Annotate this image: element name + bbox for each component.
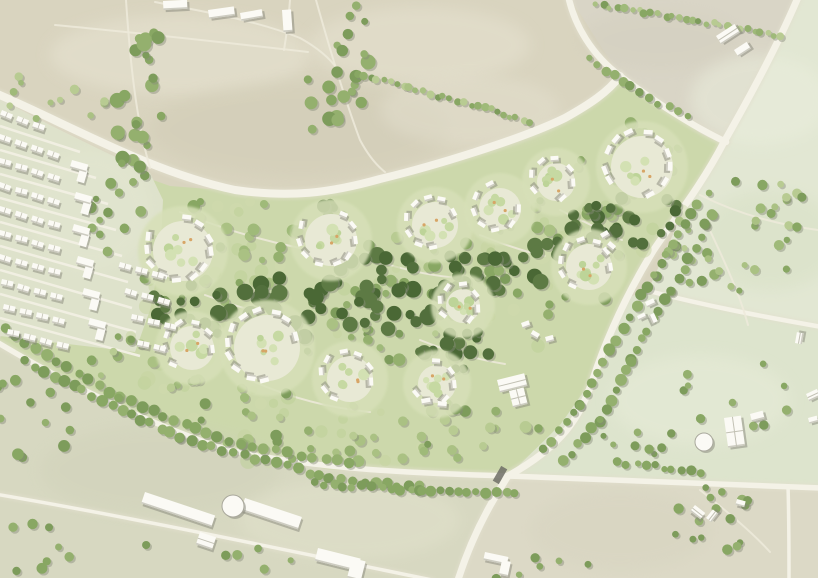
tree — [348, 334, 355, 341]
tree — [388, 78, 394, 84]
tree — [110, 348, 118, 356]
tree — [698, 234, 705, 241]
tree — [491, 407, 500, 416]
tree — [118, 405, 129, 416]
tree — [187, 435, 198, 446]
tree — [752, 217, 760, 225]
tree — [727, 283, 734, 290]
tree — [240, 450, 249, 459]
tree — [662, 251, 669, 258]
tree — [771, 203, 778, 210]
courtyard-green — [175, 342, 185, 352]
tree — [221, 551, 230, 560]
tree — [618, 323, 629, 334]
courtyard-dot — [648, 175, 651, 178]
tree — [395, 485, 405, 495]
farm-tank — [695, 433, 713, 451]
tree — [109, 401, 118, 410]
tree — [472, 488, 479, 495]
tree — [686, 465, 696, 475]
cluster-4 — [290, 199, 372, 281]
tree — [685, 113, 691, 119]
tree — [682, 253, 693, 264]
tree — [440, 337, 454, 351]
tree — [558, 455, 569, 466]
tree — [327, 318, 339, 330]
tree — [18, 80, 24, 86]
tree — [667, 429, 675, 437]
tree — [629, 214, 640, 225]
grass-blob — [140, 371, 155, 386]
tree — [237, 284, 253, 300]
tree — [6, 102, 13, 109]
tree — [666, 102, 674, 110]
tree — [58, 440, 70, 452]
tree — [377, 275, 387, 285]
tree — [725, 514, 735, 524]
tree — [260, 200, 268, 208]
building-edge — [474, 305, 476, 313]
cluster-3 — [219, 300, 315, 396]
tree — [190, 296, 200, 306]
tree — [250, 454, 260, 464]
tree — [326, 95, 337, 106]
tree — [98, 372, 104, 378]
courtyard-green — [423, 377, 429, 383]
tree — [372, 449, 380, 457]
courtyard-dot — [582, 268, 585, 271]
tree — [134, 160, 146, 172]
tree — [670, 205, 681, 216]
tree — [654, 10, 660, 16]
building-body — [282, 9, 293, 32]
tree — [447, 445, 457, 455]
tree — [136, 131, 149, 144]
tree — [363, 335, 373, 345]
tree — [15, 72, 24, 81]
tree — [354, 297, 364, 307]
tree — [771, 33, 777, 39]
tree — [792, 222, 801, 231]
tree — [716, 22, 721, 27]
tree — [271, 457, 282, 468]
tree — [593, 369, 601, 377]
tree — [703, 22, 709, 28]
tree — [545, 300, 553, 308]
tree — [774, 240, 784, 250]
tree — [397, 453, 407, 463]
tree — [657, 443, 666, 452]
tree — [419, 447, 428, 456]
tree — [642, 328, 650, 336]
courtyard-green — [165, 249, 176, 260]
tree — [453, 454, 461, 462]
tree — [41, 349, 53, 361]
tree — [586, 422, 597, 433]
tree — [248, 442, 257, 451]
tree — [635, 88, 644, 97]
tree — [480, 488, 491, 499]
tree — [657, 229, 665, 237]
grass-blob — [377, 408, 385, 416]
tree — [777, 181, 784, 188]
tree — [636, 238, 648, 250]
tree — [593, 1, 598, 6]
tree — [357, 480, 367, 490]
tree — [93, 196, 99, 202]
tree — [705, 255, 712, 262]
tree — [596, 416, 603, 423]
courtyard-dot — [642, 169, 645, 172]
tree — [697, 276, 707, 286]
tree — [718, 488, 726, 496]
tree — [640, 9, 648, 17]
tree — [337, 45, 348, 56]
tree — [445, 487, 454, 496]
road-field-spur — [788, 486, 789, 578]
tree — [167, 384, 175, 392]
tree — [668, 240, 678, 250]
tree — [674, 107, 682, 115]
tree — [258, 443, 269, 454]
tree — [699, 219, 709, 229]
tree — [695, 18, 701, 24]
grass-blob — [315, 425, 327, 437]
tree — [681, 265, 690, 274]
tree — [483, 348, 494, 359]
tree — [689, 536, 696, 543]
tree — [729, 399, 736, 406]
tree — [610, 70, 620, 80]
courtyard-green — [579, 261, 586, 268]
tree — [603, 343, 615, 355]
tree — [533, 274, 549, 290]
tree — [563, 418, 571, 426]
tree — [462, 488, 471, 497]
tree — [152, 31, 165, 44]
building-edge — [666, 162, 668, 171]
tree — [200, 398, 211, 409]
tree — [620, 4, 628, 12]
cluster-6 — [397, 187, 473, 263]
courtyard-dot — [442, 377, 445, 380]
tree — [469, 103, 475, 109]
tree — [782, 405, 791, 414]
tree — [541, 238, 553, 250]
tree — [750, 265, 759, 274]
tree — [360, 50, 368, 58]
tree — [621, 365, 631, 375]
tree — [573, 439, 582, 448]
tree — [667, 466, 674, 473]
grass-blob — [269, 399, 278, 408]
tree — [197, 198, 204, 205]
tree — [126, 395, 137, 406]
tree — [379, 251, 393, 265]
courtyard-green — [448, 297, 458, 307]
tree — [175, 433, 184, 442]
tree — [348, 88, 356, 96]
courtyard-green — [543, 181, 550, 188]
tree — [120, 224, 130, 234]
tree — [352, 1, 361, 10]
tree — [659, 293, 671, 305]
tree — [127, 336, 134, 343]
courtyard-green — [345, 368, 353, 376]
tree — [260, 565, 269, 574]
courtyard-dot — [588, 274, 591, 277]
tree — [66, 426, 75, 435]
tree — [733, 542, 742, 551]
tree — [681, 219, 691, 229]
tree — [384, 355, 394, 365]
tree — [338, 483, 347, 492]
tree — [307, 453, 317, 463]
tree — [325, 473, 334, 482]
tree — [454, 487, 463, 496]
tree — [420, 87, 426, 93]
tree — [344, 458, 354, 468]
tree — [26, 398, 35, 407]
tree — [474, 102, 482, 110]
tree — [200, 427, 211, 438]
courtyard-dot — [422, 223, 425, 226]
tree — [370, 434, 377, 441]
tree — [651, 461, 658, 468]
tree — [331, 66, 343, 78]
courtyard-green — [627, 172, 634, 179]
tree — [613, 457, 622, 466]
tree — [477, 253, 489, 265]
tree — [481, 103, 489, 111]
tree — [626, 313, 634, 321]
tree — [722, 544, 732, 554]
tree — [610, 441, 616, 447]
tree — [782, 193, 791, 202]
tree — [644, 444, 653, 453]
tree — [359, 72, 367, 80]
courtyard-green — [177, 258, 185, 266]
tree — [784, 237, 790, 243]
tree — [634, 429, 642, 437]
tree — [87, 355, 97, 365]
tree — [398, 416, 408, 426]
courtyard-dot — [185, 349, 188, 352]
tree — [255, 285, 269, 299]
tree — [343, 29, 354, 40]
courtyard-dot — [435, 219, 438, 222]
tree — [229, 448, 238, 457]
tree — [630, 7, 636, 13]
tree — [118, 160, 126, 168]
tree — [254, 545, 262, 553]
tree — [336, 308, 348, 320]
tree — [439, 93, 445, 99]
courtyard-green — [620, 161, 631, 172]
tree — [696, 414, 705, 423]
tree — [349, 432, 357, 440]
tree — [238, 249, 250, 261]
tree — [382, 290, 389, 297]
grass-blob — [212, 200, 224, 212]
tree — [642, 461, 651, 470]
tree — [576, 401, 585, 410]
tree — [168, 415, 178, 425]
tree — [82, 373, 93, 384]
tree — [622, 461, 630, 469]
tree — [331, 114, 344, 127]
site-plan-svg — [0, 0, 818, 578]
tree — [583, 390, 591, 398]
courtyard-dot — [264, 349, 267, 352]
tree — [633, 346, 641, 354]
tree — [332, 454, 343, 465]
tree — [273, 271, 286, 284]
tree — [692, 244, 701, 253]
tree — [534, 424, 543, 433]
tree — [356, 97, 367, 108]
courtyard-dot — [356, 378, 359, 381]
tree — [248, 223, 260, 235]
tree — [371, 300, 384, 313]
tree — [407, 262, 419, 274]
tree — [657, 259, 666, 268]
tree — [613, 386, 620, 393]
tree — [436, 486, 444, 494]
tree — [632, 301, 643, 312]
tree — [601, 67, 611, 77]
tree — [635, 289, 646, 300]
tree — [366, 481, 376, 491]
tree — [103, 247, 113, 257]
cluster-8 — [522, 148, 590, 216]
tree — [247, 411, 256, 420]
tree — [75, 370, 83, 378]
courtyard-green — [270, 357, 278, 365]
tree — [308, 125, 317, 134]
tree — [697, 469, 705, 477]
tree — [142, 541, 150, 549]
courtyard-dot — [469, 307, 472, 310]
tree — [273, 252, 284, 263]
tree — [197, 440, 208, 451]
tree — [546, 437, 556, 447]
tree — [380, 484, 387, 491]
courtyard-green — [316, 243, 322, 249]
tree — [104, 387, 116, 399]
tree — [176, 297, 184, 305]
cluster-5 — [312, 341, 388, 417]
tree — [47, 100, 53, 106]
tree — [282, 446, 293, 457]
tree — [114, 394, 123, 403]
tree — [661, 466, 667, 472]
courtyard-green — [441, 218, 447, 224]
tree — [446, 95, 452, 101]
tree — [372, 76, 380, 84]
tree — [598, 358, 607, 367]
tree — [275, 242, 286, 253]
tree — [756, 28, 764, 36]
tree — [64, 552, 74, 562]
cluster-9 — [596, 121, 688, 213]
tree — [520, 421, 532, 433]
tree — [678, 466, 686, 474]
tree — [635, 460, 641, 466]
tree — [650, 271, 657, 278]
grass-blob — [255, 397, 268, 410]
tree — [404, 83, 412, 91]
courtyard-dot — [196, 342, 199, 345]
tree — [306, 469, 315, 478]
tree — [543, 309, 553, 319]
tree — [513, 288, 522, 297]
tree — [606, 203, 616, 213]
tree — [526, 119, 533, 126]
tree — [148, 74, 157, 83]
tree — [271, 285, 287, 301]
tree — [10, 375, 21, 386]
tree — [744, 25, 751, 32]
tree — [646, 9, 653, 16]
tree — [417, 486, 426, 495]
tree — [681, 245, 687, 251]
tree — [556, 557, 563, 564]
tree — [38, 366, 50, 378]
tree — [376, 265, 387, 276]
tree — [276, 414, 284, 422]
courtyard-green — [269, 344, 277, 352]
tree — [20, 356, 29, 365]
tree — [585, 561, 592, 568]
tree — [347, 484, 355, 492]
tree — [87, 392, 96, 401]
tree — [570, 409, 577, 416]
tree — [784, 221, 793, 230]
courtyard-green — [339, 381, 347, 389]
tree — [320, 482, 328, 490]
tree — [591, 201, 601, 211]
tree — [132, 120, 141, 129]
courtyard-dot — [330, 241, 333, 244]
tree — [424, 441, 431, 448]
tree — [12, 448, 24, 460]
industrial-tank — [222, 495, 244, 517]
tree — [297, 451, 307, 461]
masterplan-site-map — [0, 0, 818, 578]
tree — [345, 445, 356, 456]
tree — [536, 563, 543, 570]
tree — [692, 199, 702, 209]
tree — [217, 446, 227, 456]
grass-blob — [392, 265, 400, 273]
courtyard-green — [338, 363, 346, 371]
tree — [111, 126, 125, 140]
tree — [105, 178, 116, 189]
tree — [749, 422, 758, 431]
tree — [115, 333, 122, 340]
tree — [259, 257, 265, 263]
tree — [149, 405, 160, 416]
courtyard-dot — [261, 349, 264, 352]
tree — [500, 112, 507, 119]
tree — [96, 217, 103, 224]
tree — [494, 109, 500, 115]
courtyard-dot — [431, 374, 434, 377]
courtyard-green — [439, 231, 447, 239]
courtyard-green — [593, 262, 600, 269]
tree — [673, 503, 683, 513]
